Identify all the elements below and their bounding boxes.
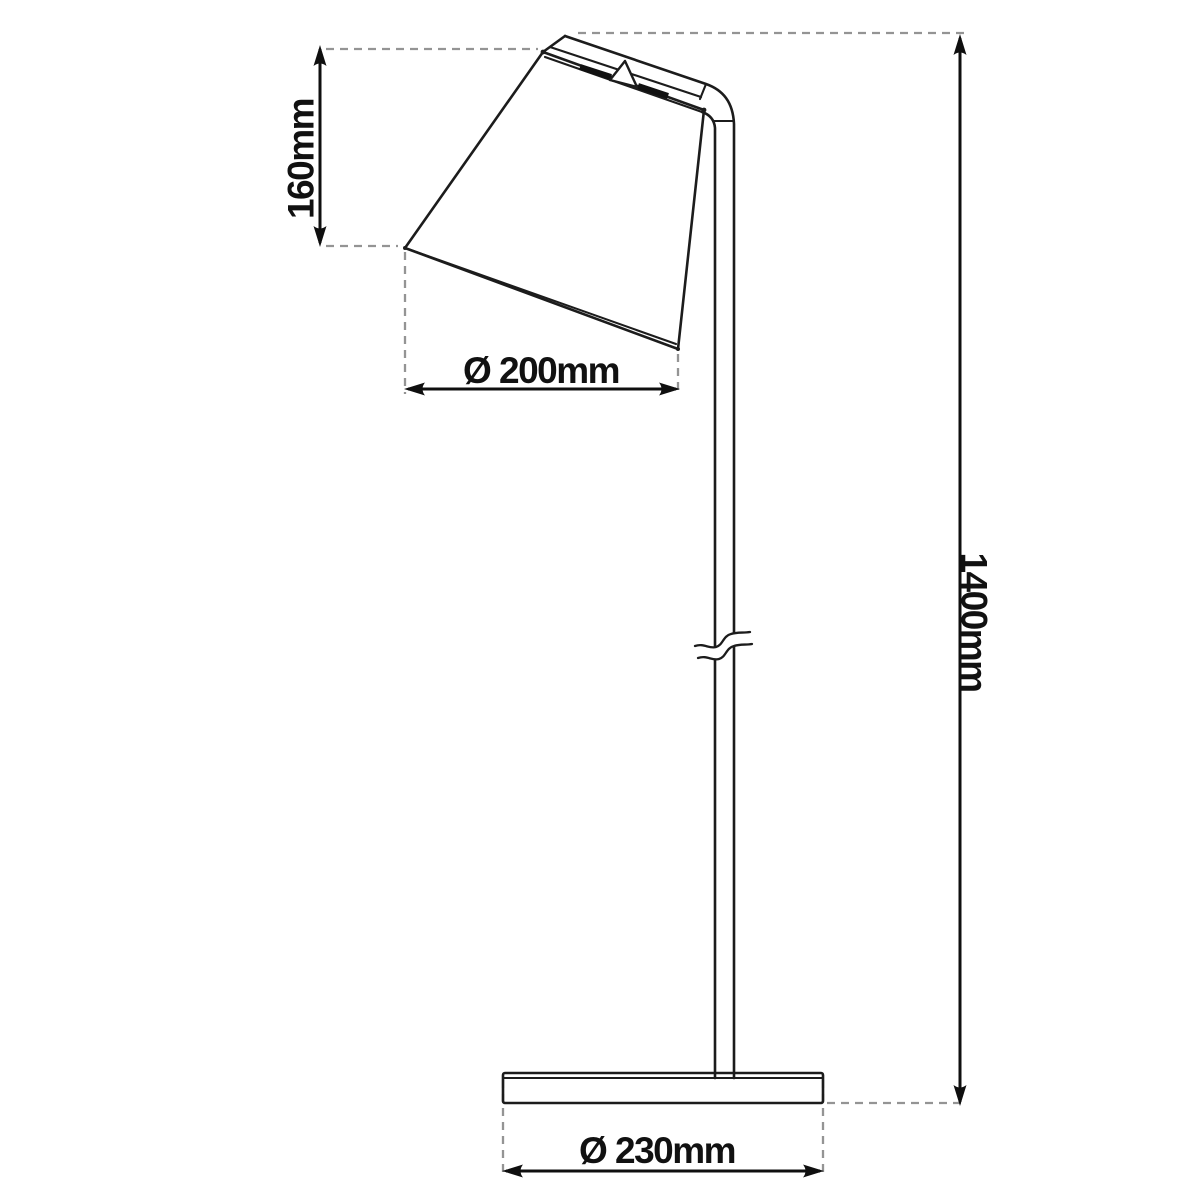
- drawing-canvas: 160mm Ø 200mm 1400mm Ø 230mm: [0, 0, 1200, 1200]
- lamp-outline: [403, 36, 823, 1103]
- arrowhead-up-icon: [954, 34, 967, 55]
- arrowhead-right-icon: [803, 1165, 824, 1178]
- rim-node-right: [702, 108, 707, 113]
- rim-node-left: [541, 50, 546, 55]
- arrowhead-left-icon: [502, 1165, 523, 1178]
- shade-height-label: 160mm: [281, 99, 322, 219]
- arm-and-pole-right-edge: [565, 36, 734, 1078]
- dimension-total-height: 1400mm: [954, 34, 995, 1106]
- total-height-label: 1400mm: [954, 552, 995, 691]
- arm-end-cap: [543, 36, 565, 52]
- extension-lines: [326, 33, 966, 1178]
- rim-node-bottom-right: [676, 347, 680, 351]
- shade-left-edge: [405, 52, 543, 248]
- base-diameter-label: Ø 230mm: [579, 1130, 735, 1171]
- dimension-shade-height: 160mm: [281, 45, 327, 247]
- arrowhead-up-icon: [314, 45, 327, 66]
- arrowhead-down-icon: [314, 226, 327, 247]
- shade-right-edge: [678, 110, 704, 349]
- shade-diameter-label: Ø 200mm: [463, 350, 619, 391]
- shade-bottom-rim-inner: [408, 249, 676, 344]
- dimension-shade-diameter: Ø 200mm: [404, 350, 680, 396]
- arm-bend-seam: [700, 84, 706, 99]
- lamp-dimension-drawing: 160mm Ø 200mm 1400mm Ø 230mm: [0, 0, 1200, 1200]
- dimension-base-diameter: Ø 230mm: [502, 1130, 824, 1178]
- arrowhead-left-icon: [404, 383, 425, 396]
- pole-left-edge: [702, 112, 715, 1078]
- rim-node-bottom-left: [403, 246, 407, 250]
